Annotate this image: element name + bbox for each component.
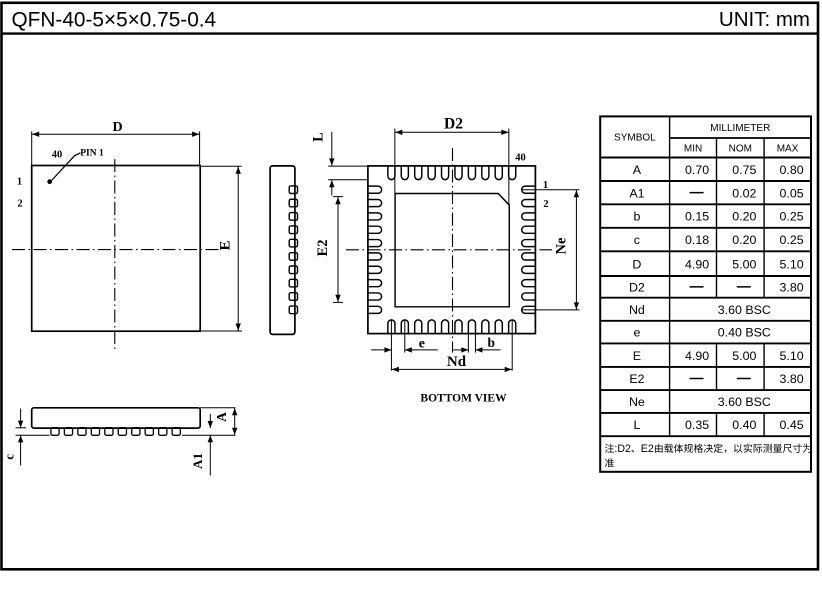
svg-text:A: A [633,163,642,177]
svg-text:3.60 BSC: 3.60 BSC [718,395,771,409]
svg-text:3.60 BSC: 3.60 BSC [718,303,771,317]
svg-text:Nd: Nd [447,354,467,370]
svg-text:L: L [311,132,327,142]
svg-text:Ne: Ne [629,395,645,409]
svg-text:0.40: 0.40 [732,418,756,432]
svg-text:NOM: NOM [729,143,752,154]
svg-text:D2: D2 [629,280,645,294]
svg-text:A1: A1 [629,186,644,200]
svg-text:SYMBOL: SYMBOL [614,133,656,144]
svg-text:0.20: 0.20 [732,210,756,224]
svg-text:L: L [633,418,640,432]
svg-text:Nd: Nd [629,303,645,317]
svg-text:PIN 1: PIN 1 [80,149,104,159]
svg-text:0.75: 0.75 [732,163,756,177]
svg-text:c: c [2,454,17,460]
svg-text:E2: E2 [629,372,644,386]
svg-text:e: e [419,337,425,352]
svg-text:MAX: MAX [777,143,799,154]
svg-text:E: E [633,349,641,363]
svg-text:Ne: Ne [554,237,570,254]
svg-text:0.70: 0.70 [685,163,709,177]
svg-text:5.10: 5.10 [779,349,803,363]
svg-text:40: 40 [52,150,63,161]
svg-text:e: e [633,326,640,340]
svg-text:b: b [488,335,496,350]
svg-text:MILLIMETER: MILLIMETER [710,123,770,134]
svg-text:4.90: 4.90 [685,257,709,271]
svg-text:1: 1 [17,177,22,188]
svg-text:0.05: 0.05 [779,186,803,200]
svg-text:2: 2 [17,199,22,210]
svg-text:0.15: 0.15 [685,210,709,224]
svg-text:0.45: 0.45 [779,418,803,432]
svg-text::D2: :D2 [614,443,631,455]
svg-text:0.20: 0.20 [732,233,756,247]
svg-text:BOTTOM VIEW: BOTTOM VIEW [420,393,507,405]
svg-text:5.00: 5.00 [732,349,756,363]
svg-text:0.80: 0.80 [779,163,803,177]
svg-text:0.35: 0.35 [685,418,709,432]
svg-text:D: D [112,120,122,135]
svg-text:5.00: 5.00 [732,257,756,271]
svg-text:b: b [633,210,640,224]
svg-text:E2: E2 [315,240,331,257]
svg-text:A1: A1 [190,453,205,469]
svg-text:4.90: 4.90 [685,349,709,363]
svg-text:5.10: 5.10 [779,257,803,271]
svg-text:3.80: 3.80 [779,372,803,386]
svg-text:QFN-40-5×5×0.75-0.4: QFN-40-5×5×0.75-0.4 [12,8,217,31]
svg-text:A: A [214,412,229,422]
svg-text:E: E [218,240,234,250]
svg-text:UNIT: mm: UNIT: mm [719,8,810,31]
svg-text:0.18: 0.18 [685,233,709,247]
svg-text:40: 40 [515,153,526,164]
svg-text:D: D [632,257,641,271]
svg-text:0.25: 0.25 [779,210,803,224]
svg-text:2: 2 [543,199,548,210]
svg-text:E2: E2 [641,443,654,455]
svg-text:0.40 BSC: 0.40 BSC [718,326,771,340]
svg-text:0.02: 0.02 [732,186,756,200]
svg-text:c: c [634,233,640,247]
svg-text:0.25: 0.25 [779,233,803,247]
svg-text:D2: D2 [444,116,463,133]
svg-text:3.80: 3.80 [779,280,803,294]
svg-text:MIN: MIN [684,143,702,154]
